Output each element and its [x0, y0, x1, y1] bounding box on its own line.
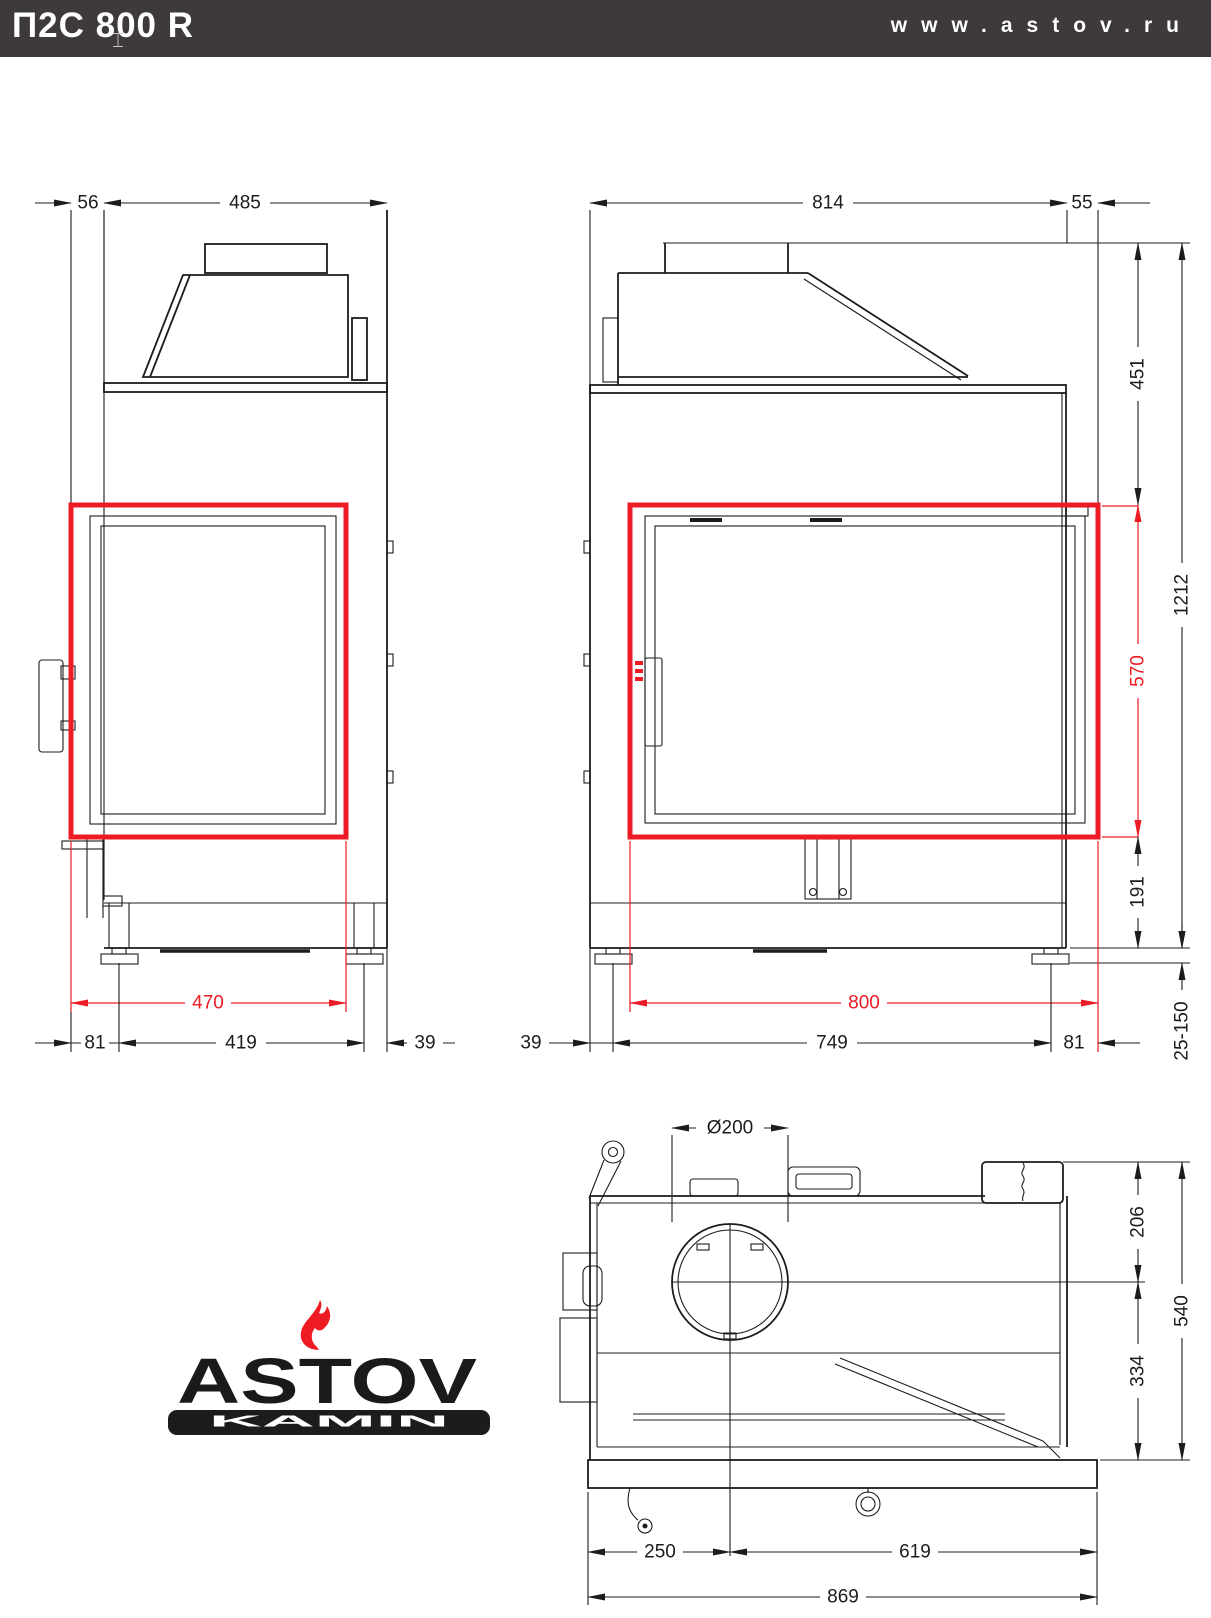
brand-name: ASTOV [177, 1345, 477, 1417]
dim-front-bottom-left: 39 [520, 1033, 541, 1054]
side-view: 56 485 [35, 192, 455, 1054]
side-glass-highlight [71, 505, 346, 837]
dim-front-bottom-right: 81 [1063, 1033, 1084, 1054]
technical-drawing: 56 485 [0, 0, 1211, 1618]
brand-tagline: KAMIN [209, 1414, 449, 1431]
dim-side-bottom-front: 81 [84, 1033, 105, 1054]
dim-front-body-width: 814 [812, 193, 844, 214]
front-body [590, 385, 1066, 948]
front-feet [595, 948, 1069, 964]
dim-top-flue-diameter: Ø200 [707, 1118, 753, 1139]
top-front-door [588, 1447, 1097, 1533]
dim-top-flue-to-back: 206 [1128, 1206, 1149, 1238]
dim-side-glass-depth: 470 [192, 993, 224, 1014]
dim-front-side-offset: 55 [1071, 193, 1092, 214]
front-center-support [805, 839, 851, 899]
front-glass-highlight [630, 505, 1098, 837]
dim-top-total-width: 869 [827, 1587, 859, 1608]
dim-top-flue-to-front: 334 [1128, 1355, 1149, 1387]
drawing-sheet: П2С 800 R www.astov.ru ⌶ [0, 0, 1211, 1618]
side-hood [104, 244, 387, 392]
top-interior [597, 1353, 1060, 1458]
dim-front-leg-range: 25-150 [1172, 1001, 1193, 1060]
dim-front-total-height: 1212 [1172, 574, 1193, 616]
dim-top-flue-from-left: 250 [644, 1542, 676, 1563]
brand-logo: ASTOV KAMIN [168, 1300, 490, 1435]
top-left-handle [560, 1253, 602, 1402]
dim-side-bottom-back: 39 [414, 1033, 435, 1054]
dim-side-body-depth: 485 [229, 193, 261, 214]
side-legs [101, 903, 383, 964]
dim-side-front-offset: 56 [77, 193, 98, 214]
dim-front-glass-width: 800 [848, 993, 880, 1014]
dim-top-total-depth: 540 [1172, 1295, 1193, 1327]
dim-front-hood-height: 451 [1128, 358, 1149, 390]
flame-icon [301, 1300, 330, 1350]
front-hood [590, 243, 1190, 393]
side-door [39, 516, 336, 918]
dim-front-base-height: 191 [1128, 876, 1149, 908]
dim-front-leg-span: 749 [816, 1033, 848, 1054]
dim-side-leg-span: 419 [225, 1033, 257, 1054]
front-door [645, 507, 1088, 823]
top-view: Ø200 [560, 1117, 1193, 1608]
dim-top-flue-to-right: 619 [899, 1542, 931, 1563]
front-view: 814 55 [513, 192, 1193, 1069]
top-back-edge [590, 1162, 1190, 1203]
front-hinge-marks [635, 661, 643, 681]
dim-front-glass-height: 570 [1128, 655, 1149, 687]
